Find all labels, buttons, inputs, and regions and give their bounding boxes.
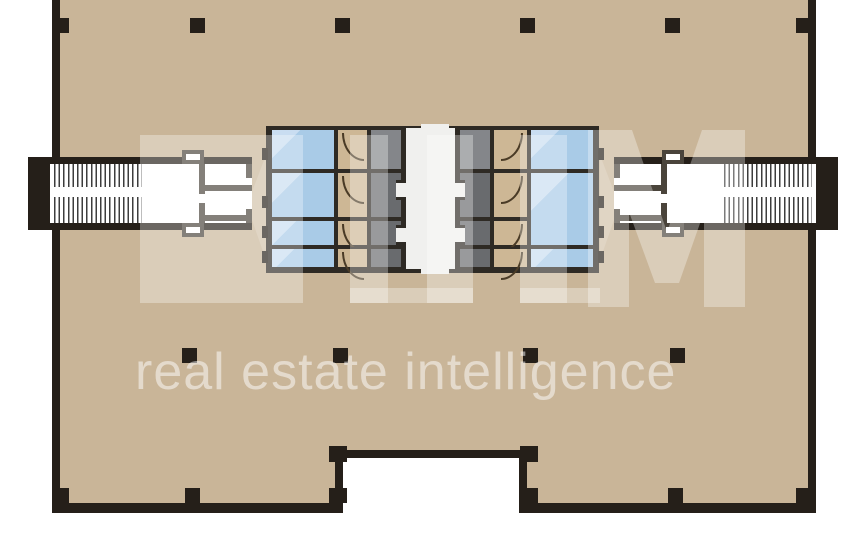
vestibule-duct bbox=[182, 150, 204, 164]
structural-column bbox=[665, 18, 680, 33]
corridor-door-recess bbox=[396, 180, 406, 200]
structural-column bbox=[796, 488, 808, 503]
structural-column bbox=[335, 18, 350, 33]
right-wall-upper bbox=[808, 0, 816, 160]
elevator-door-jamb bbox=[262, 226, 268, 238]
stair-mid-landing bbox=[722, 187, 814, 197]
structural-column bbox=[523, 348, 538, 363]
structural-column bbox=[520, 446, 538, 462]
wc-cell bbox=[492, 247, 529, 269]
stair-bottom-wall bbox=[28, 223, 252, 230]
vestibule-wall bbox=[246, 164, 252, 178]
vestibule-wall bbox=[614, 215, 661, 221]
floor-notch bbox=[343, 458, 519, 513]
elevator-cell bbox=[529, 171, 595, 247]
elevator-cell bbox=[270, 128, 336, 171]
bottom-wall-left bbox=[52, 503, 335, 513]
structural-column bbox=[190, 18, 205, 33]
vestibule-duct bbox=[662, 150, 684, 164]
corridor-door-recess bbox=[455, 180, 465, 200]
service-cell bbox=[369, 247, 403, 269]
vestibule-wall bbox=[205, 185, 252, 191]
structural-column bbox=[796, 18, 808, 33]
stair-mid-landing bbox=[52, 187, 144, 197]
bottom-wall-right bbox=[527, 503, 816, 513]
corridor-bottom-opening bbox=[421, 266, 449, 274]
structural-column bbox=[520, 18, 535, 33]
door-swing-arc bbox=[342, 176, 364, 204]
wc-cell bbox=[336, 171, 369, 219]
vestibule-wall bbox=[614, 209, 620, 223]
wc-cell bbox=[492, 219, 529, 247]
door-swing-arc bbox=[501, 133, 523, 161]
elevator-door-jamb bbox=[262, 148, 268, 160]
elevator-cell bbox=[529, 128, 595, 171]
structural-column bbox=[57, 488, 69, 503]
wc-cell bbox=[492, 171, 529, 219]
service-cell bbox=[458, 247, 492, 269]
corridor-door-recess bbox=[455, 225, 465, 245]
notch-top-wall bbox=[335, 450, 527, 458]
structural-column bbox=[670, 348, 685, 363]
door-swing-arc bbox=[342, 133, 364, 161]
wc-cell bbox=[336, 247, 369, 269]
structural-column bbox=[185, 488, 200, 503]
floor-plan: real estate intelligence bbox=[0, 0, 864, 537]
elevator-cell bbox=[270, 219, 336, 247]
right-wall-lower bbox=[808, 227, 816, 513]
elevator-door-jamb bbox=[598, 196, 604, 208]
central-corridor bbox=[403, 128, 458, 269]
structural-column bbox=[57, 18, 69, 33]
service-cell bbox=[369, 128, 403, 171]
left-wall-lower bbox=[52, 227, 60, 513]
elevator-door-jamb bbox=[598, 251, 604, 263]
wc-cell bbox=[336, 219, 369, 247]
stair-top-wall bbox=[614, 157, 838, 164]
wc-cell bbox=[492, 128, 529, 171]
stair-top-wall bbox=[28, 157, 252, 164]
vestibule-duct bbox=[662, 223, 684, 237]
corridor-door-recess bbox=[396, 225, 406, 245]
elevator-cell bbox=[529, 247, 595, 269]
elevator-cell bbox=[270, 247, 336, 269]
corridor-top-opening bbox=[421, 124, 449, 131]
structural-column bbox=[668, 488, 683, 503]
structural-column bbox=[329, 488, 347, 503]
service-cell bbox=[458, 128, 492, 171]
vestibule-wall bbox=[614, 164, 620, 178]
vestibule-wall bbox=[614, 185, 661, 191]
elevator-door-jamb bbox=[598, 226, 604, 238]
stair-end-cap bbox=[28, 157, 50, 230]
door-swing-arc bbox=[501, 176, 523, 204]
wc-cell bbox=[336, 128, 369, 171]
structural-column bbox=[182, 348, 197, 363]
elevator-door-jamb bbox=[262, 251, 268, 263]
structural-column bbox=[329, 446, 347, 462]
elevator-door-jamb bbox=[598, 148, 604, 160]
vestibule-wall bbox=[246, 209, 252, 223]
vestibule-wall bbox=[205, 215, 252, 221]
structural-column bbox=[333, 348, 348, 363]
elevator-door-jamb bbox=[262, 196, 268, 208]
stair-bottom-wall bbox=[614, 223, 838, 230]
stair-end-cap bbox=[816, 157, 838, 230]
vestibule-wall bbox=[661, 203, 667, 223]
vestibule-wall bbox=[661, 164, 667, 194]
structural-column bbox=[520, 488, 538, 503]
elevator-cell bbox=[270, 171, 336, 219]
vestibule-duct bbox=[182, 223, 204, 237]
